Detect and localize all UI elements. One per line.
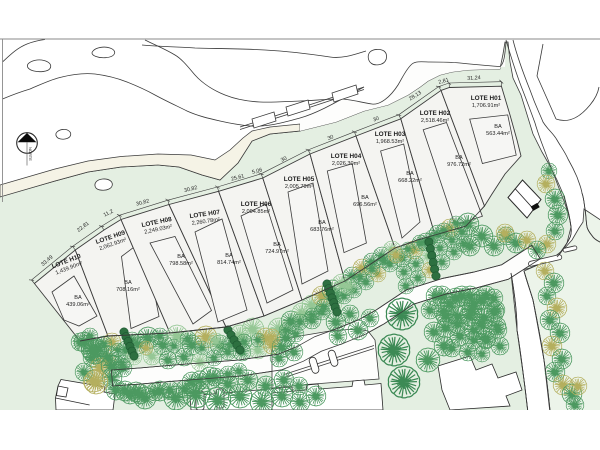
svg-text:LOTE H03: LOTE H03: [375, 131, 406, 138]
svg-text:1,968.53m²: 1,968.53m²: [376, 139, 404, 145]
svg-text:2,518.46m²: 2,518.46m²: [421, 118, 449, 124]
svg-text:976.72m²: 976.72m²: [447, 162, 471, 168]
svg-text:BA: BA: [225, 253, 233, 259]
svg-text:LOTE H04: LOTE H04: [331, 153, 362, 160]
svg-text:BA: BA: [74, 295, 82, 301]
svg-text:BA: BA: [318, 220, 326, 226]
svg-text:668.22m²: 668.22m²: [398, 178, 422, 184]
svg-text:BA: BA: [124, 280, 132, 286]
svg-text:BA: BA: [177, 254, 185, 260]
svg-text:724.97m²: 724.97m²: [265, 249, 289, 255]
svg-text:2,005.79m²: 2,005.79m²: [285, 184, 313, 190]
svg-text:1,706.91m²: 1,706.91m²: [472, 103, 500, 109]
svg-text:BA: BA: [406, 171, 414, 177]
svg-text:BA: BA: [361, 195, 369, 201]
svg-text:814.74m²: 814.74m²: [217, 260, 241, 266]
svg-text:683.76m²: 683.76m²: [310, 227, 334, 233]
svg-text:LOTE H02: LOTE H02: [420, 110, 451, 117]
svg-text:BA: BA: [494, 124, 502, 130]
svg-text:798.58m²: 798.58m²: [169, 261, 193, 267]
svg-text:696.56m²: 696.56m²: [353, 202, 377, 208]
svg-text:LOTE H06: LOTE H06: [241, 201, 272, 208]
svg-text:31,24: 31,24: [467, 75, 481, 82]
svg-text:BA: BA: [273, 242, 281, 248]
svg-text:2,026.30m²: 2,026.30m²: [332, 161, 360, 167]
svg-text:563.44m²: 563.44m²: [486, 131, 510, 137]
svg-text:LOTE H01: LOTE H01: [471, 95, 502, 102]
svg-text:439.06m²: 439.06m²: [66, 302, 90, 308]
svg-text:NORTE: NORTE: [28, 147, 33, 161]
svg-text:LOTE H05: LOTE H05: [284, 176, 315, 183]
svg-text:2,094.85m²: 2,094.85m²: [242, 209, 270, 215]
svg-text:BA: BA: [455, 155, 463, 161]
svg-text:708.16m²: 708.16m²: [116, 287, 140, 293]
